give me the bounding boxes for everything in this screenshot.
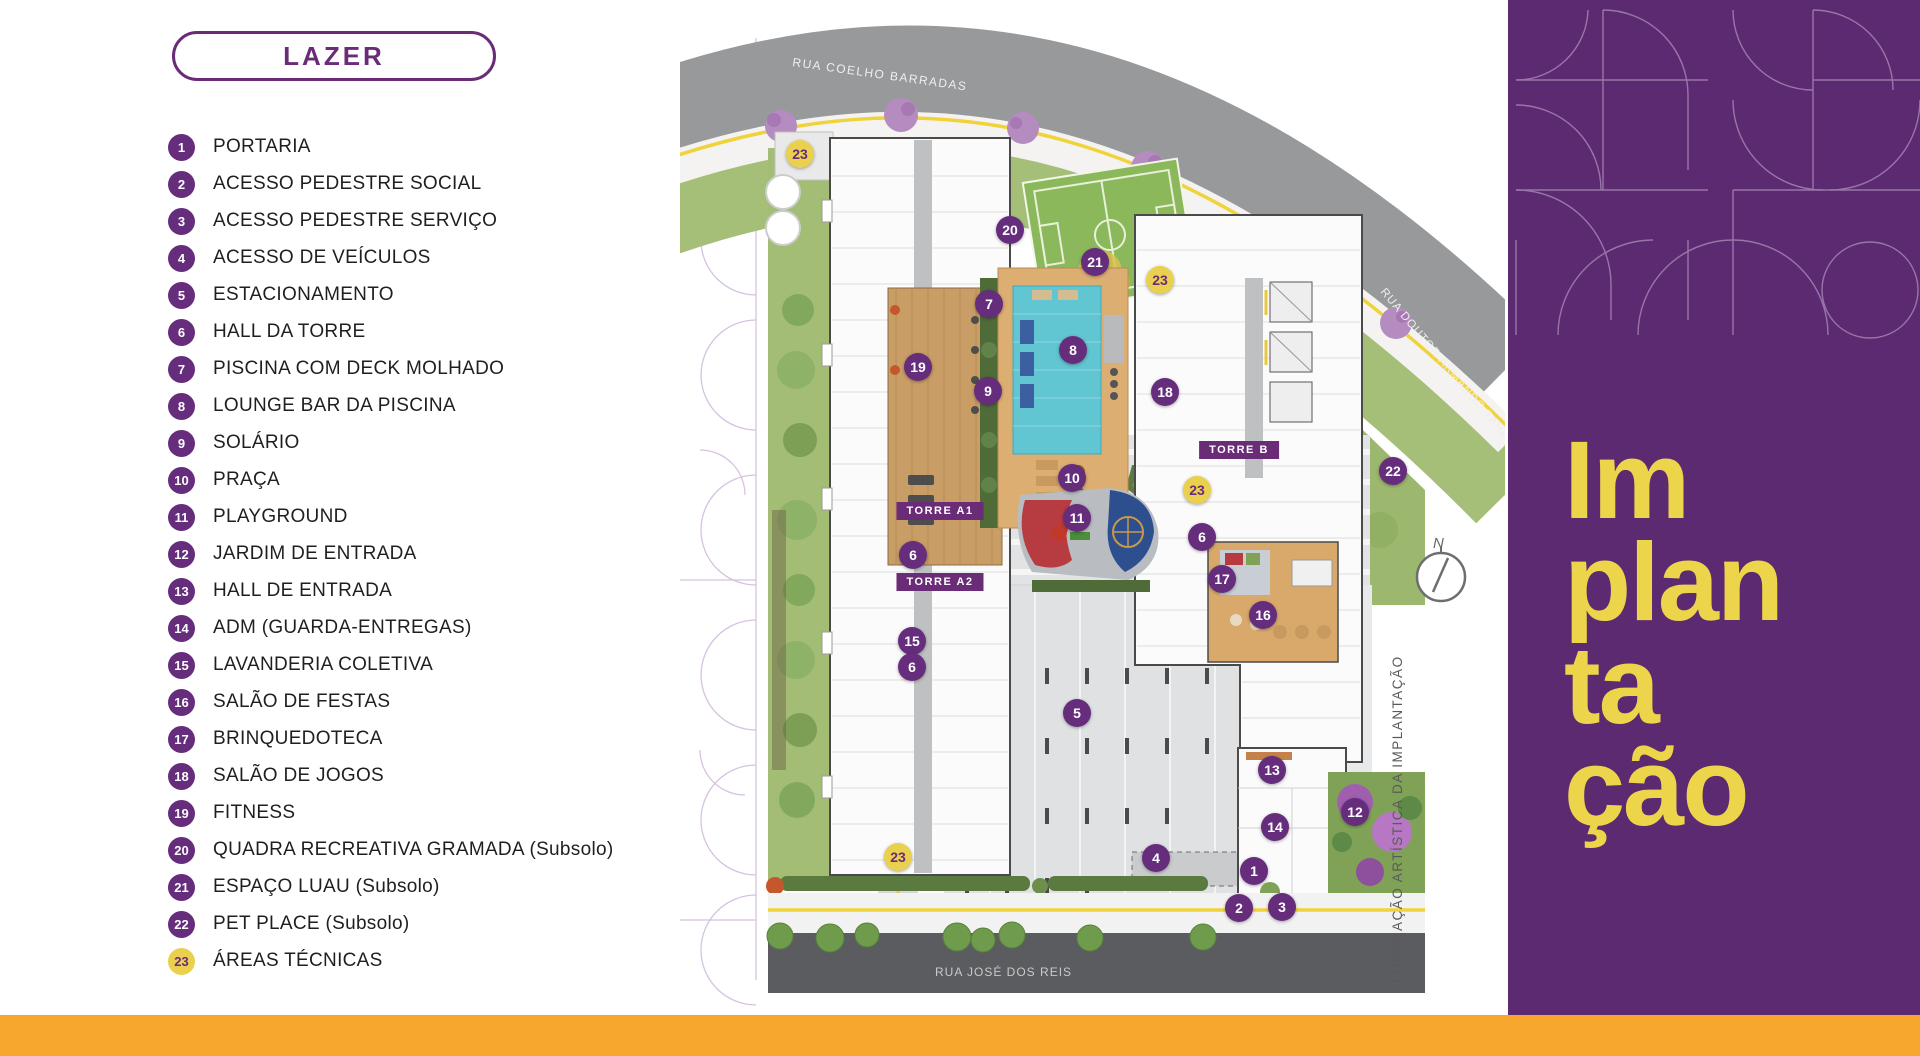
legend-item-number: 21 [168, 874, 195, 901]
legend-item-label: ESPAÇO LUAU (Subsolo) [213, 876, 440, 898]
legend-item: 17BRINQUEDOTECA [168, 725, 613, 753]
title-line-1: Im [1564, 430, 1782, 532]
legend-item-number: 3 [168, 208, 195, 235]
map-marker: 18 [1151, 378, 1179, 406]
amenity-block [1208, 542, 1338, 662]
legend-item-number: 5 [168, 282, 195, 309]
legend-item-number: 2 [168, 171, 195, 198]
legend-item-number: 19 [168, 800, 195, 827]
legend-item-label: ÁREAS TÉCNICAS [213, 950, 383, 972]
legend-item-label: ACESSO DE VEÍCULOS [213, 247, 431, 269]
legend-item: 18SALÃO DE JOGOS [168, 762, 613, 790]
legend-item: 4ACESSO DE VEÍCULOS [168, 244, 613, 272]
implantacao-panel: Im plan ta ção [1508, 0, 1920, 1056]
legend-item-number: 6 [168, 319, 195, 346]
legend-item-number: 4 [168, 245, 195, 272]
map-marker: 11 [1063, 504, 1091, 532]
legend-item: 7PISCINA COM DECK MOLHADO [168, 355, 613, 383]
map-marker: 21 [1081, 248, 1109, 276]
legend-item: 5ESTACIONAMENTO [168, 281, 613, 309]
legend-item-label: ESTACIONAMENTO [213, 284, 394, 306]
map-marker: 23 [884, 843, 912, 871]
road-bottom [767, 893, 1425, 993]
legend-item-label: LAVANDERIA COLETIVA [213, 654, 433, 676]
map-marker: 5 [1063, 699, 1091, 727]
map-marker: 23 [786, 140, 814, 168]
map-marker: 13 [1258, 756, 1286, 784]
legend-item-label: BRINQUEDOTECA [213, 728, 383, 750]
legend-item-label: HALL DE ENTRADA [213, 580, 392, 602]
legend-item-number: 15 [168, 652, 195, 679]
title-line-3: ta [1564, 635, 1782, 737]
legend-item-label: PLAYGROUND [213, 506, 348, 528]
legend-item-number: 10 [168, 467, 195, 494]
map-marker: 3 [1268, 893, 1296, 921]
legend-list: 1PORTARIA2ACESSO PEDESTRE SOCIAL3ACESSO … [168, 133, 613, 984]
legend-item: 6HALL DA TORRE [168, 318, 613, 346]
legend-item-label: FITNESS [213, 802, 295, 824]
legend-item-label: ACESSO PEDESTRE SERVIÇO [213, 210, 497, 232]
legend-item-number: 11 [168, 504, 195, 531]
legend-item-number: 20 [168, 837, 195, 864]
legend-item: 20QUADRA RECREATIVA GRAMADA (Subsolo) [168, 836, 613, 864]
map-marker: 15 [898, 627, 926, 655]
street-label-jose-dos-reis: RUA JOSÉ DOS REIS [935, 964, 1072, 979]
legend-item-number: 8 [168, 393, 195, 420]
legend-item: 3ACESSO PEDESTRE SERVIÇO [168, 207, 613, 235]
illustration-caption: ILUSTRAÇÃO ARTÍSTICA DA IMPLANTAÇÃO [1390, 688, 1416, 988]
map-marker: 8 [1059, 336, 1087, 364]
legend-item: 2ACESSO PEDESTRE SOCIAL [168, 170, 613, 198]
legend-item-number: 23 [168, 948, 195, 975]
map-marker: 22 [1379, 457, 1407, 485]
legend-item: 1PORTARIA [168, 133, 613, 161]
map-marker: 23 [1146, 266, 1174, 294]
map-marker: 23 [1183, 476, 1211, 504]
site-plan-art: N RUA COELHO BARRADAS RUA DOUTOR ARMANDO… [680, 20, 1505, 1015]
title-line-2: plan [1564, 532, 1782, 634]
map-marker: 10 [1058, 464, 1086, 492]
bottom-accent-bar [0, 1015, 1920, 1056]
legend-title: LAZER [283, 41, 385, 72]
legend-item-label: LOUNGE BAR DA PISCINA [213, 395, 456, 417]
legend-item: 14ADM (GUARDA-ENTREGAS) [168, 614, 613, 642]
legend-item: 23ÁREAS TÉCNICAS [168, 947, 613, 975]
legend-item-label: PET PLACE (Subsolo) [213, 913, 410, 935]
map-marker: 7 [975, 290, 1003, 318]
legend-item: 8LOUNGE BAR DA PISCINA [168, 392, 613, 420]
legend-item-label: SALÃO DE JOGOS [213, 765, 384, 787]
tower-label-a1: TORRE A1 [896, 502, 983, 520]
page-title: Im plan ta ção [1564, 430, 1782, 839]
legend-item: 11PLAYGROUND [168, 503, 613, 531]
site-plan-map: N RUA COELHO BARRADAS RUA DOUTOR ARMANDO… [680, 20, 1505, 1015]
legend-item-number: 18 [168, 763, 195, 790]
tower-label-b: TORRE B [1199, 441, 1279, 459]
legend-item-number: 17 [168, 726, 195, 753]
map-marker: 6 [899, 541, 927, 569]
map-marker: 6 [898, 653, 926, 681]
legend-item-label: PISCINA COM DECK MOLHADO [213, 358, 504, 380]
map-marker: 2 [1225, 894, 1253, 922]
map-marker: 6 [1188, 523, 1216, 551]
legend-item: 12JARDIM DE ENTRADA [168, 540, 613, 568]
legend-item: 13HALL DE ENTRADA [168, 577, 613, 605]
legend-item-label: SALÃO DE FESTAS [213, 691, 390, 713]
legend-item-label: PRAÇA [213, 469, 280, 491]
map-marker: 9 [974, 377, 1002, 405]
legend-item-number: 9 [168, 430, 195, 457]
tower-label-a2: TORRE A2 [896, 573, 983, 591]
legend-item-number: 13 [168, 578, 195, 605]
legend-item-number: 1 [168, 134, 195, 161]
legend-item: 15LAVANDERIA COLETIVA [168, 651, 613, 679]
legend-item-number: 22 [168, 911, 195, 938]
panel-deco-pattern [1508, 0, 1920, 340]
legend-item-label: JARDIM DE ENTRADA [213, 543, 417, 565]
legend-title-pill: LAZER [172, 31, 496, 81]
map-marker: 16 [1249, 601, 1277, 629]
map-marker: 1 [1240, 857, 1268, 885]
map-marker: 14 [1261, 813, 1289, 841]
map-marker: 17 [1208, 565, 1236, 593]
legend-item-label: SOLÁRIO [213, 432, 300, 454]
legend-item-label: ADM (GUARDA-ENTREGAS) [213, 617, 472, 639]
legend-item-number: 7 [168, 356, 195, 383]
legend-item-number: 12 [168, 541, 195, 568]
title-line-4: ção [1564, 737, 1782, 839]
legend-item: 21ESPAÇO LUAU (Subsolo) [168, 873, 613, 901]
legend-item: 16SALÃO DE FESTAS [168, 688, 613, 716]
map-marker: 20 [996, 216, 1024, 244]
compass-n-label: N [1433, 535, 1444, 552]
legend-item: 10PRAÇA [168, 466, 613, 494]
legend-item-number: 14 [168, 615, 195, 642]
legend-item-label: ACESSO PEDESTRE SOCIAL [213, 173, 481, 195]
map-marker: 4 [1142, 844, 1170, 872]
page: LAZER 1PORTARIA2ACESSO PEDESTRE SOCIAL3A… [0, 0, 1920, 1056]
map-marker: 19 [904, 353, 932, 381]
legend-item-number: 16 [168, 689, 195, 716]
legend-item-label: HALL DA TORRE [213, 321, 365, 343]
legend-item-label: PORTARIA [213, 136, 311, 158]
legend-item: 19FITNESS [168, 799, 613, 827]
legend-item-label: QUADRA RECREATIVA GRAMADA (Subsolo) [213, 839, 613, 861]
legend-item: 22PET PLACE (Subsolo) [168, 910, 613, 938]
map-marker: 12 [1341, 798, 1369, 826]
legend-item: 9SOLÁRIO [168, 429, 613, 457]
